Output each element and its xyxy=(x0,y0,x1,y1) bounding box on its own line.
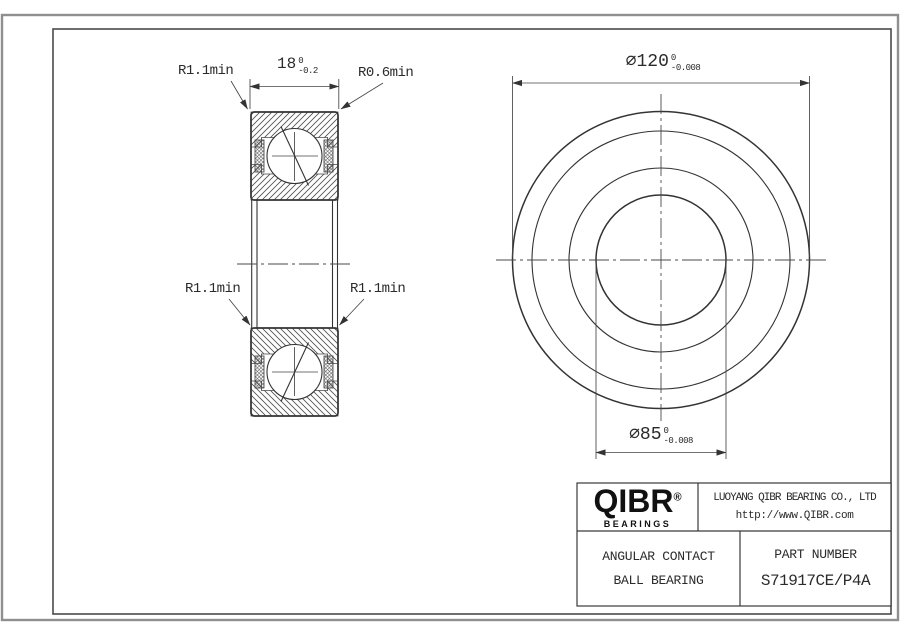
width-dimension-label: 18 0 -0.2 xyxy=(277,56,318,77)
company-website: http://www.QIBR.com xyxy=(736,511,854,522)
title-block-company-cell: LUOYANG QIBR BEARING CO., LTD http://www… xyxy=(698,483,891,531)
radius-label-bottom-left: R1.1min xyxy=(185,282,240,296)
radius-label-bottom-right: R1.1min xyxy=(350,282,405,296)
bearing-section-view xyxy=(229,79,383,416)
part-number-value: S71917CE/P4A xyxy=(761,573,870,589)
bore-tolerance-upper: 0 xyxy=(664,426,693,436)
registered-trademark-icon: ® xyxy=(673,491,681,503)
bore-tolerance: 0 -0.008 xyxy=(664,426,693,447)
width-tolerance-lower: -0.2 xyxy=(298,66,318,76)
bore-tolerance-lower: -0.008 xyxy=(664,436,693,446)
leader-radius-top-left xyxy=(231,81,248,109)
leader-radius-bottom-right xyxy=(340,299,365,325)
od-tolerance-lower: -0.008 xyxy=(671,63,700,73)
od-dimension-label: ∅120 0 -0.008 xyxy=(626,53,701,74)
section-top-half xyxy=(251,112,338,200)
cage-right xyxy=(324,140,333,172)
dimension-width xyxy=(250,79,339,109)
title-block-product-cell: ANGULAR CONTACT BALL BEARING xyxy=(577,531,740,606)
bore-value: ∅85 xyxy=(629,426,661,444)
od-tolerance: 0 -0.008 xyxy=(671,53,700,74)
leader-radius-bottom-left xyxy=(229,299,250,325)
leader-radius-top-right xyxy=(341,83,383,109)
title-block-part-number-cell: PART NUMBER S71917CE/P4A xyxy=(740,531,891,606)
cage-left xyxy=(255,140,264,172)
width-tolerance: 0 -0.2 xyxy=(298,56,318,77)
od-value: ∅120 xyxy=(626,53,669,71)
width-tolerance-upper: 0 xyxy=(298,56,318,66)
brand-tagline: BEARINGS xyxy=(604,519,672,529)
radius-label-top-right: R0.6min xyxy=(358,66,413,80)
part-number-label: PART NUMBER xyxy=(774,548,857,561)
product-type-line1: ANGULAR CONTACT xyxy=(602,550,715,563)
product-type-line2: BALL BEARING xyxy=(613,574,703,587)
brand-wordmark: QIBR xyxy=(593,483,673,519)
section-bottom-half xyxy=(251,328,338,416)
drawing-sheet: R1.1min 18 0 -0.2 R0.6min R1.1min R1.1mi… xyxy=(0,0,900,636)
od-tolerance-upper: 0 xyxy=(671,53,700,63)
company-name: LUOYANG QIBR BEARING CO., LTD xyxy=(713,493,875,504)
bore-dimension-label: ∅85 0 -0.008 xyxy=(629,426,693,447)
width-value: 18 xyxy=(277,56,296,72)
brand-logo: QIBR® xyxy=(593,485,681,517)
bearing-front-view xyxy=(496,76,827,459)
title-block-logo-cell: QIBR® BEARINGS xyxy=(577,483,698,531)
radius-label-top-left: R1.1min xyxy=(178,64,233,78)
